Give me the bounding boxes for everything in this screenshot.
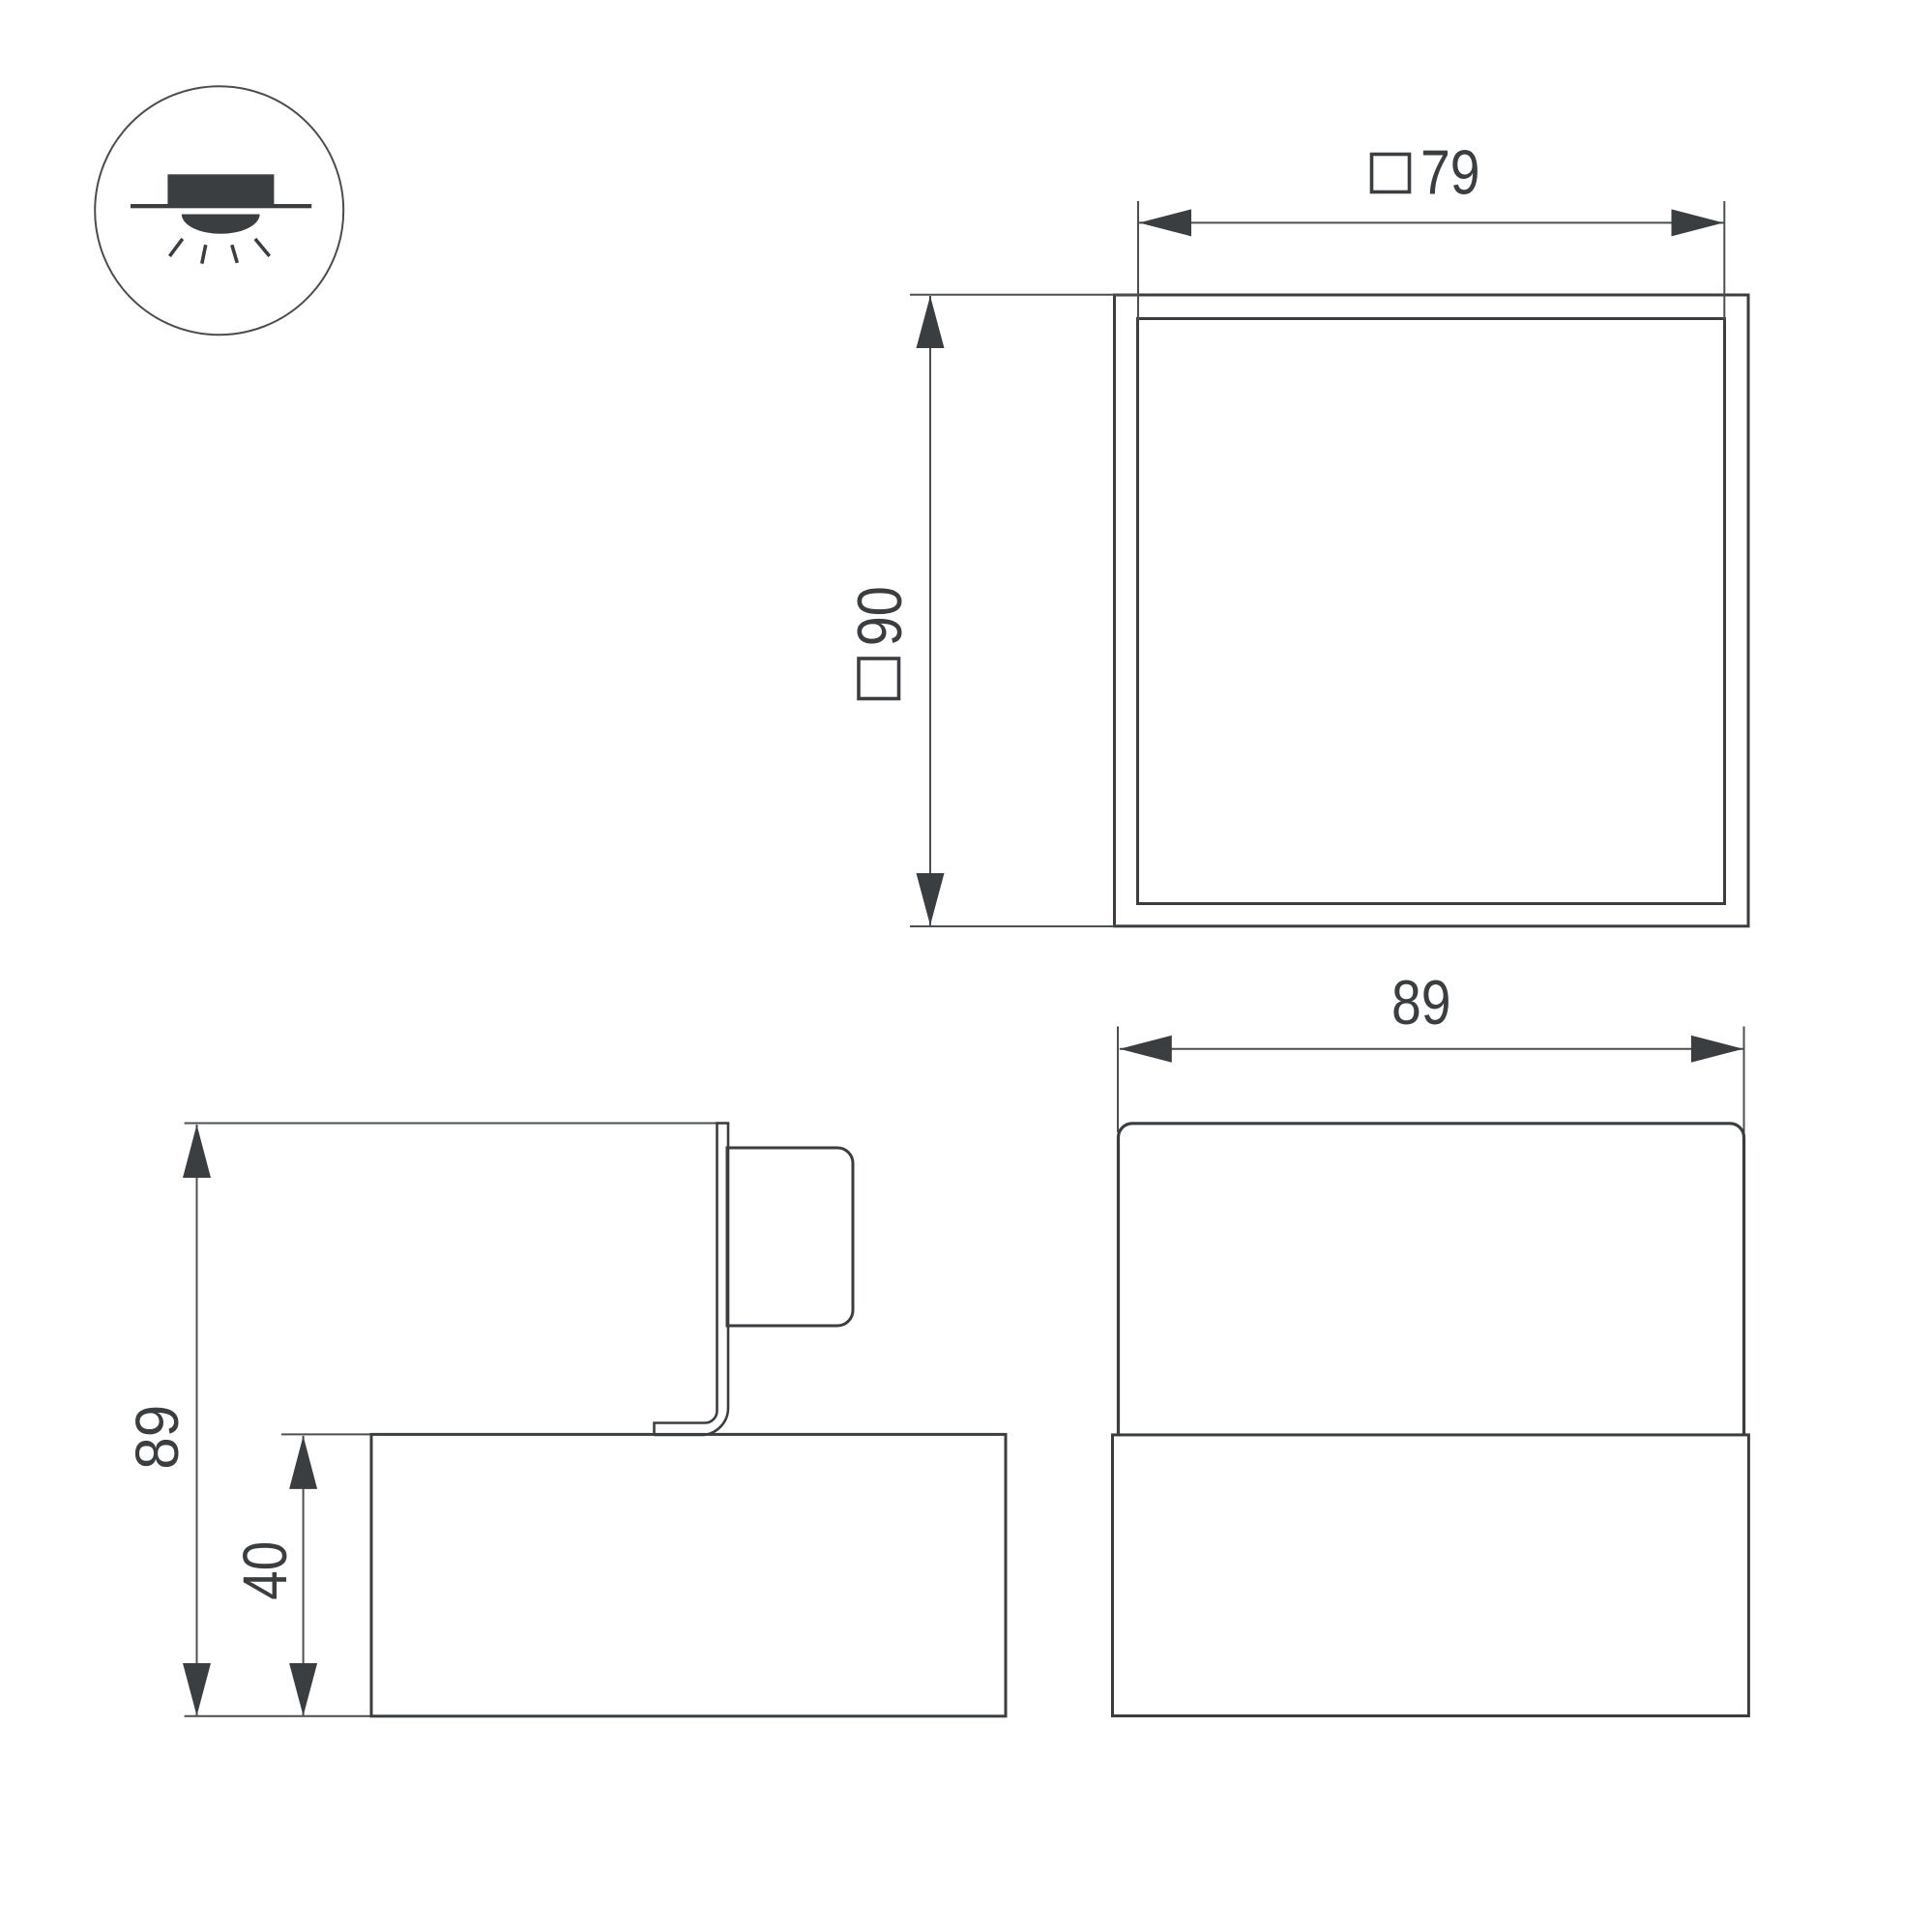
svg-text:40: 40 <box>230 1541 300 1600</box>
svg-text:79: 79 <box>1420 136 1480 207</box>
svg-text:89: 89 <box>124 1405 191 1470</box>
svg-text:89: 89 <box>1391 967 1451 1038</box>
svg-text:90: 90 <box>844 586 915 646</box>
